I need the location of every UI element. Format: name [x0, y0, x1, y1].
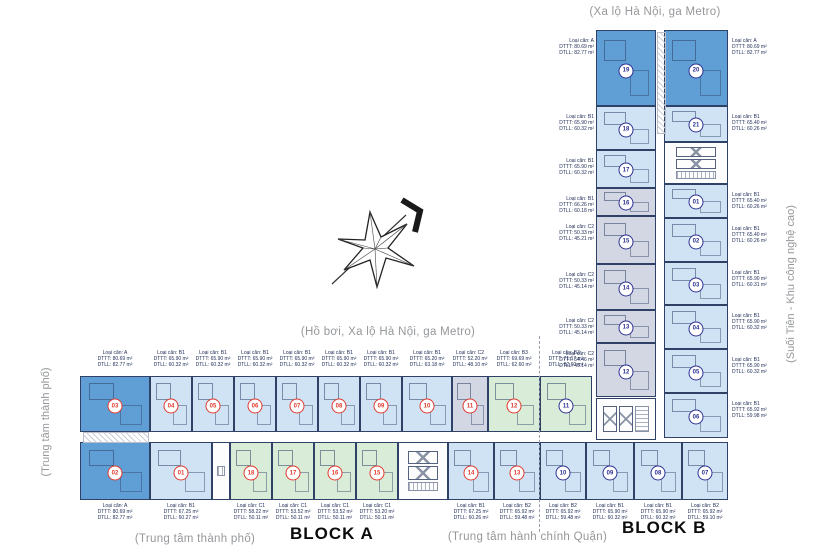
- elevator-core: [596, 398, 656, 440]
- unit-area-label: Loại căn: B1DTTT: 65.90 m²DTLL: 60.32 m²: [728, 305, 782, 331]
- unit-block-b-13[interactable]: 13: [596, 310, 656, 343]
- unit-number-badge: 08: [651, 466, 666, 481]
- elevator-core: [212, 442, 230, 500]
- caption-mid-street: (Hồ bơi, Xa lộ Hà Nội, ga Metro): [268, 326, 508, 338]
- unit-block-a-18[interactable]: 18: [230, 442, 272, 500]
- unit-number-badge: 13: [619, 320, 634, 335]
- unit-area-label: Loại căn: C1DTTT: 58.22 m²DTLL: 50.11 m²: [230, 503, 272, 521]
- block-b-left-row: Loại căn: C2DTTT: 54.46 m²DTLL: 45.14 m²…: [544, 343, 656, 397]
- block-a-bottom-row: 020118171615141310090807: [80, 442, 728, 500]
- unit-block-a-06[interactable]: 06: [234, 376, 276, 432]
- block-b-title: BLOCK B: [622, 518, 706, 538]
- block-b-right-row: 03Loại căn: B1DTTT: 65.90 m²DTLL: 60.31 …: [664, 262, 782, 305]
- unit-area-label: Loại căn: B1DTTT: 65.90 m²DTLL: 60.32 m²: [150, 350, 192, 368]
- unit-block-b-19[interactable]: 19: [596, 30, 656, 106]
- unit-block-b-15[interactable]: 15: [596, 216, 656, 264]
- unit-number-badge: 14: [619, 281, 634, 296]
- elevator-icon: [408, 451, 439, 465]
- unit-area-label: Loại căn: B1DTTT: 65.40 m²DTLL: 60.26 m²: [728, 106, 782, 132]
- unit-area-label: Loại căn: C2DTTT: 54.46 m²DTLL: 45.14 m²: [544, 343, 596, 369]
- stairs-icon: [217, 466, 225, 475]
- unit-number-badge: 16: [619, 196, 634, 211]
- unit-area-label: Loại căn: B1DTTT: 65.90 m²DTLL: 60.32 m²: [276, 350, 318, 368]
- unit-number-badge: 17: [286, 466, 301, 481]
- unit-area-label: Loại căn: B1DTTT: 65.90 m²DTLL: 60.32 m²: [192, 350, 234, 368]
- unit-area-label: Loại căn: B1DTTT: 65.90 m²DTLL: 60.32 m²: [360, 350, 402, 368]
- unit-area-label: Loại căn: B1DTTT: 67.25 m²DTLL: 60.26 m²: [448, 503, 494, 521]
- unit-area-label: Loại căn: ADTTT: 80.69 m²DTLL: 82.77 m²: [80, 350, 150, 368]
- unit-area-label: Loại căn: B3DTTT: 69.69 m²DTLL: 62.60 m²: [488, 350, 540, 368]
- unit-block-a-07[interactable]: 07: [276, 376, 318, 432]
- unit-block-b-07[interactable]: 07: [682, 442, 728, 500]
- block-b-left-row: Loại căn: ADTTT: 80.69 m²DTLL: 82.77 m²1…: [544, 30, 656, 106]
- unit-area-label: [212, 503, 230, 521]
- unit-block-b-09[interactable]: 09: [586, 442, 634, 500]
- stairs-icon: [408, 482, 439, 491]
- block-b-left-row: Loại căn: C2DTTT: 50.33 m²DTLL: 45.14 m²…: [544, 264, 656, 310]
- unit-area-label: [728, 142, 782, 150]
- unit-block-a-10[interactable]: 10: [402, 376, 452, 432]
- unit-block-b-18[interactable]: 18: [596, 106, 656, 150]
- unit-block-b-17[interactable]: 17: [596, 150, 656, 188]
- elevator-icon: [408, 466, 439, 480]
- unit-block-b-10[interactable]: 10: [540, 442, 586, 500]
- caption-top-street: (Xa lộ Hà Nội, ga Metro): [540, 6, 770, 18]
- unit-number-badge: 10: [420, 399, 435, 414]
- unit-area-label: Loại căn: B1DTTT: 66.26 m²DTLL: 60.18 m²: [544, 188, 596, 214]
- unit-block-b-21[interactable]: 21: [664, 106, 728, 142]
- unit-number-badge: 18: [244, 466, 259, 481]
- unit-block-a-14[interactable]: 14: [448, 442, 494, 500]
- block-b-left-row: Loại căn: B1DTTT: 65.90 m²DTLL: 60.32 m²…: [544, 106, 656, 150]
- unit-block-b-05[interactable]: 05: [664, 349, 728, 393]
- unit-number-badge: 13: [510, 466, 525, 481]
- elevator-icon: [676, 147, 717, 157]
- unit-area-label: Loại căn: B1DTTT: 67.25 m²DTLL: 60.27 m²: [150, 503, 212, 521]
- unit-block-b-06[interactable]: 06: [664, 393, 728, 438]
- block-b-left-row: Loại căn: B1DTTT: 65.90 m²DTLL: 60.32 m²…: [544, 150, 656, 188]
- unit-number-badge: 01: [689, 195, 704, 210]
- unit-block-a-16[interactable]: 16: [314, 442, 356, 500]
- unit-block-a-02[interactable]: 02: [80, 442, 150, 500]
- unit-number-badge: 03: [689, 278, 704, 293]
- unit-block-a-13[interactable]: 13: [494, 442, 540, 500]
- elevator-core: [664, 142, 728, 184]
- unit-number-badge: 11: [463, 399, 478, 414]
- unit-area-label: Loại căn: B1DTTT: 65.20 m²DTLL: 63.18 m²: [402, 350, 452, 368]
- unit-block-a-12[interactable]: 12: [488, 376, 540, 432]
- unit-number-badge: 02: [689, 234, 704, 249]
- elevator-icon: [619, 406, 633, 431]
- unit-area-label: [398, 503, 448, 521]
- unit-number-badge: 12: [619, 365, 634, 380]
- unit-number-badge: 09: [374, 399, 389, 414]
- unit-number-badge: 06: [689, 410, 704, 425]
- unit-number-badge: 15: [619, 234, 634, 249]
- elevator-icon: [603, 406, 617, 431]
- block-separator-line: [539, 336, 540, 532]
- unit-area-label: Loại căn: B1DTTT: 65.40 m²DTLL: 60.26 m²: [728, 218, 782, 244]
- unit-area-label: Loại căn: C1DTTT: 53.52 m²DTLL: 50.11 m²: [272, 503, 314, 521]
- block-b-left-column: Loại căn: ADTTT: 80.69 m²DTLL: 82.77 m²1…: [544, 30, 656, 397]
- unit-area-label: Loại căn: ADTTT: 80.69 m²DTLL: 82.77 m²: [80, 503, 150, 521]
- block-b-left-row: Loại căn: B1DTTT: 66.26 m²DTLL: 60.18 m²…: [544, 188, 656, 216]
- unit-number-badge: 07: [698, 466, 713, 481]
- unit-block-b-20[interactable]: 20: [664, 30, 728, 106]
- unit-number-badge: 17: [619, 163, 634, 178]
- elevator-icon: [676, 159, 717, 169]
- unit-number-badge: 20: [689, 63, 704, 78]
- block-b-right-row: 20Loại căn: ADTTT: 80.69 m²DTLL: 82.77 m…: [664, 30, 782, 106]
- unit-area-label: Loại căn: C2DTTT: 50.33 m²DTLL: 45.14 m²: [544, 264, 596, 290]
- block-b-right-row: 05Loại căn: B1DTTT: 65.90 m²DTLL: 60.32 …: [664, 349, 782, 393]
- block-b-right-row: 02Loại căn: B1DTTT: 65.40 m²DTLL: 60.26 …: [664, 218, 782, 262]
- block-a-bottom-labels: Loại căn: ADTTT: 80.69 m²DTLL: 82.77 m²L…: [80, 503, 728, 521]
- unit-area-label: Loại căn: B2DTTT: 65.92 m²DTLL: 59.48 m²: [494, 503, 540, 521]
- unit-number-badge: 09: [603, 466, 618, 481]
- unit-number-badge: 03: [108, 399, 123, 414]
- unit-number-badge: 18: [619, 122, 634, 137]
- unit-block-a-11[interactable]: 11: [452, 376, 488, 432]
- unit-block-a-09[interactable]: 09: [360, 376, 402, 432]
- block-b-right-column: 20Loại căn: ADTTT: 80.69 m²DTLL: 82.77 m…: [664, 30, 782, 438]
- unit-area-label: Loại căn: C2DTTT: 50.33 m²DTLL: 45.21 m²: [544, 216, 596, 242]
- unit-number-badge: 21: [689, 118, 704, 133]
- unit-area-label: Loại căn: B1DTTT: 65.90 m²DTLL: 60.32 m²: [634, 503, 682, 521]
- block-b-right-row: 01Loại căn: B1DTTT: 65.40 m²DTLL: 60.26 …: [664, 184, 782, 218]
- unit-area-label: Loại căn: C1DTTT: 53.20 m²DTLL: 50.11 m²: [356, 503, 398, 521]
- unit-area-label: Loại căn: B1DTTT: 65.90 m²DTLL: 60.32 m²: [318, 350, 360, 368]
- unit-area-label: Loại căn: C1DTTT: 53.52 m²DTLL: 50.11 m²: [314, 503, 356, 521]
- block-b-right-row: 06Loại căn: B1DTTT: 65.92 m²DTLL: 59.98 …: [664, 393, 782, 438]
- unit-area-label: Loại căn: B1DTTT: 65.92 m²DTLL: 59.98 m²: [728, 393, 782, 419]
- block-a-top-row: 0304050607080910111211: [80, 376, 592, 432]
- unit-number-badge: 11: [559, 399, 574, 414]
- unit-block-b-12[interactable]: 12: [596, 343, 656, 397]
- unit-block-b-16[interactable]: 16: [596, 188, 656, 216]
- unit-area-label: Loại căn: B1DTTT: 65.90 m²DTLL: 60.32 m²: [544, 150, 596, 176]
- unit-area-label: Loại căn: ADTTT: 80.69 m²DTLL: 82.77 m²: [728, 30, 782, 56]
- elevator-core: [398, 442, 448, 500]
- unit-block-a-08[interactable]: 08: [318, 376, 360, 432]
- corridor-hatch: [83, 432, 149, 443]
- unit-area-label: Loại căn: B1DTTT: 65.90 m²DTLL: 60.32 m²: [728, 349, 782, 375]
- stairs-icon: [676, 171, 717, 179]
- unit-area-label: Loại căn: B2DTTT: 65.92 m²DTLL: 59.48 m²: [540, 503, 586, 521]
- unit-number-badge: 02: [108, 466, 123, 481]
- unit-block-a-05[interactable]: 05: [192, 376, 234, 432]
- unit-number-badge: 12: [507, 399, 522, 414]
- unit-block-b-14[interactable]: 14: [596, 264, 656, 310]
- unit-number-badge: 06: [248, 399, 263, 414]
- caption-bottom-right: (Trung tâm hành chính Quận): [445, 531, 610, 543]
- unit-number-badge: 04: [689, 321, 704, 336]
- block-a-title: BLOCK A: [290, 524, 374, 544]
- caption-side-right: (Suối Tiên - Khu công nghệ cao): [785, 149, 797, 419]
- caption-side-left: (Trung tâm thành phố): [40, 337, 52, 507]
- unit-block-b-04[interactable]: 04: [664, 305, 728, 349]
- unit-block-b-03[interactable]: 03: [664, 262, 728, 305]
- unit-area-label: Loại căn: C2DTTT: 52.20 m²DTLL: 48.10 m²: [452, 350, 488, 368]
- unit-area-label: Loại căn: C2DTTT: 50.33 m²DTLL: 45.14 m²: [544, 310, 596, 336]
- corridor-hatch: [657, 32, 666, 134]
- unit-area-label: Loại căn: B1DTTT: 65.90 m²DTLL: 60.32 m²: [586, 503, 634, 521]
- unit-number-badge: 16: [328, 466, 343, 481]
- unit-block-b-08[interactable]: 08: [634, 442, 682, 500]
- unit-area-label: Loại căn: B2DTTT: 65.92 m²DTLL: 59.10 m²: [682, 503, 728, 521]
- unit-area-label: Loại căn: B1DTTT: 65.90 m²DTLL: 60.32 m²: [234, 350, 276, 368]
- stairs-icon: [635, 406, 649, 431]
- unit-block-a-04[interactable]: 04: [150, 376, 192, 432]
- caption-bottom-left: (Trung tâm thành phố): [115, 533, 275, 545]
- unit-number-badge: 05: [689, 365, 704, 380]
- unit-area-label: Loại căn: ADTTT: 80.69 m²DTLL: 82.77 m²: [544, 30, 596, 56]
- unit-block-a-01[interactable]: 01: [150, 442, 212, 500]
- unit-block-a-15[interactable]: 15: [356, 442, 398, 500]
- unit-number-badge: 04: [164, 399, 179, 414]
- floor-plan-canvas: (Xa lộ Hà Nội, ga Metro) (Hồ bơi, Xa lộ …: [0, 0, 832, 556]
- unit-area-label: Loại căn: B1DTTT: 65.90 m²DTLL: 60.32 m²: [544, 106, 596, 132]
- unit-number-badge: 08: [332, 399, 347, 414]
- unit-number-badge: 15: [370, 466, 385, 481]
- unit-number-badge: 05: [206, 399, 221, 414]
- block-b-left-row: Loại căn: C2DTTT: 50.33 m²DTLL: 45.14 m²…: [544, 310, 656, 343]
- unit-area-label: Loại căn: B1DTTT: 65.90 m²DTLL: 60.31 m²: [728, 262, 782, 288]
- unit-block-b-01[interactable]: 01: [664, 184, 728, 218]
- unit-number-badge: 07: [290, 399, 305, 414]
- unit-block-a-03[interactable]: 03: [80, 376, 150, 432]
- block-b-left-row: Loại căn: C2DTTT: 50.33 m²DTLL: 45.21 m²…: [544, 216, 656, 264]
- block-b-right-row: 04Loại căn: B1DTTT: 65.90 m²DTLL: 60.32 …: [664, 305, 782, 349]
- block-b-right-row: 21Loại căn: B1DTTT: 65.40 m²DTLL: 60.26 …: [664, 106, 782, 142]
- block-a-top-labels: Loại căn: ADTTT: 80.69 m²DTLL: 82.77 m²L…: [80, 350, 592, 368]
- unit-number-badge: 10: [556, 466, 571, 481]
- unit-block-b-02[interactable]: 02: [664, 218, 728, 262]
- unit-number-badge: 01: [174, 466, 189, 481]
- unit-number-badge: 14: [464, 466, 479, 481]
- unit-block-a-17[interactable]: 17: [272, 442, 314, 500]
- unit-number-badge: 19: [619, 63, 634, 78]
- compass-icon: [330, 182, 448, 300]
- block-b-right-row: [664, 142, 782, 184]
- unit-area-label: Loại căn: B1DTTT: 65.40 m²DTLL: 60.26 m²: [728, 184, 782, 210]
